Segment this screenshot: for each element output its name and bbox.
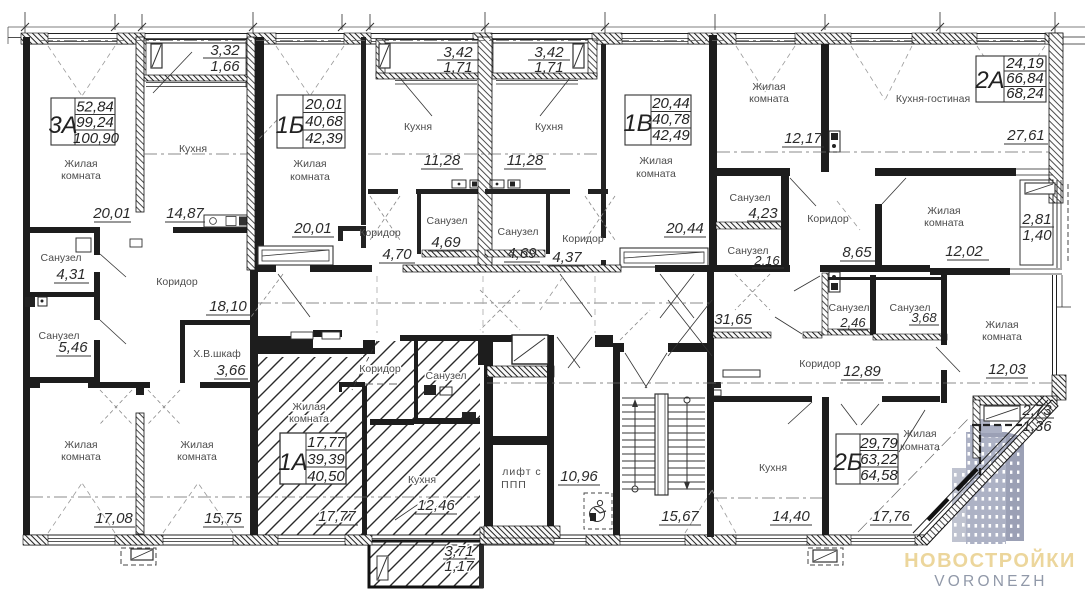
svg-text:1А: 1А <box>278 449 307 476</box>
svg-text:Санузел: Санузел <box>730 192 771 204</box>
svg-text:Коридор: Коридор <box>807 213 849 225</box>
svg-text:Х.В.шкаф: Х.В.шкаф <box>193 348 241 360</box>
svg-text:4,70: 4,70 <box>382 246 412 263</box>
svg-text:68,24: 68,24 <box>1006 85 1044 102</box>
svg-text:17,77: 17,77 <box>318 508 356 525</box>
svg-text:14,87: 14,87 <box>166 205 204 222</box>
svg-text:Кухня-гостиная: Кухня-гостиная <box>896 93 970 105</box>
svg-text:Санузел: Санузел <box>426 370 467 382</box>
svg-text:Кухня: Кухня <box>408 474 436 486</box>
svg-text:1,71: 1,71 <box>443 59 472 76</box>
svg-text:39,39: 39,39 <box>307 451 345 468</box>
svg-text:комната: комната <box>982 331 1022 343</box>
svg-text:4,69: 4,69 <box>507 245 537 262</box>
svg-text:3,66: 3,66 <box>216 362 246 379</box>
svg-text:Жилая: Жилая <box>639 155 672 167</box>
svg-text:Коридор: Коридор <box>562 233 604 245</box>
svg-text:12,17: 12,17 <box>784 130 822 147</box>
svg-text:комната: комната <box>61 170 101 182</box>
svg-text:Жилая: Жилая <box>927 205 960 217</box>
svg-text:52,84: 52,84 <box>76 99 114 116</box>
svg-text:комната: комната <box>290 171 330 183</box>
svg-text:4,31: 4,31 <box>56 266 85 283</box>
svg-text:64,58: 64,58 <box>860 467 898 484</box>
svg-text:Санузел: Санузел <box>41 252 82 264</box>
svg-text:Коридор: Коридор <box>359 227 401 239</box>
svg-text:1,17: 1,17 <box>444 558 474 575</box>
svg-text:17,76: 17,76 <box>872 508 910 525</box>
svg-text:2,46: 2,46 <box>839 315 866 330</box>
svg-text:Санузел: Санузел <box>829 302 870 314</box>
svg-text:42,49: 42,49 <box>652 127 690 144</box>
svg-text:Санузел: Санузел <box>498 226 539 238</box>
svg-text:42,39: 42,39 <box>305 130 343 147</box>
svg-text:Кухня: Кухня <box>404 121 432 133</box>
svg-text:комната: комната <box>900 441 940 453</box>
svg-text:Жилая: Жилая <box>292 401 325 413</box>
svg-text:15,75: 15,75 <box>204 510 242 527</box>
svg-text:2А: 2А <box>974 67 1004 94</box>
svg-text:Санузел: Санузел <box>427 215 468 227</box>
svg-text:Жилая: Жилая <box>985 319 1018 331</box>
svg-text:Кухня: Кухня <box>759 462 787 474</box>
svg-text:НОВОСТРОЙКИ: НОВОСТРОЙКИ <box>904 548 1076 572</box>
svg-text:17,08: 17,08 <box>95 510 133 527</box>
svg-text:2,73: 2,73 <box>1021 402 1052 419</box>
svg-text:20,44: 20,44 <box>665 220 704 237</box>
svg-text:Кухня: Кухня <box>535 121 563 133</box>
svg-text:31,65: 31,65 <box>714 311 752 328</box>
svg-text:Коридор: Коридор <box>799 358 841 370</box>
svg-text:100,90: 100,90 <box>73 130 120 147</box>
svg-text:4,23: 4,23 <box>748 205 778 222</box>
svg-text:17,77: 17,77 <box>307 434 345 451</box>
svg-text:1,71: 1,71 <box>534 59 563 76</box>
svg-text:Жилая: Жилая <box>64 158 97 170</box>
svg-text:20,44: 20,44 <box>651 95 690 112</box>
svg-text:12,02: 12,02 <box>945 243 983 260</box>
svg-text:Жилая: Жилая <box>180 439 213 451</box>
svg-text:3,68: 3,68 <box>911 310 937 325</box>
svg-text:4,69: 4,69 <box>431 234 461 251</box>
svg-text:1,40: 1,40 <box>1022 227 1052 244</box>
svg-text:20,01: 20,01 <box>293 220 332 237</box>
svg-text:VORONEZH: VORONEZH <box>934 573 1047 590</box>
svg-text:18,10: 18,10 <box>209 298 247 315</box>
svg-text:99,24: 99,24 <box>76 114 114 131</box>
svg-text:лифт с: лифт с <box>502 466 541 478</box>
svg-text:2,16: 2,16 <box>753 253 780 268</box>
svg-text:63,22: 63,22 <box>860 451 898 468</box>
svg-text:Жилая: Жилая <box>293 158 326 170</box>
svg-text:40,50: 40,50 <box>307 468 345 485</box>
svg-text:11,28: 11,28 <box>507 152 544 169</box>
svg-text:2,81: 2,81 <box>1021 211 1051 228</box>
svg-text:Коридор: Коридор <box>359 363 401 375</box>
svg-text:40,78: 40,78 <box>652 111 690 128</box>
svg-text:29,79: 29,79 <box>859 435 898 452</box>
svg-text:27,61: 27,61 <box>1006 127 1045 144</box>
svg-text:комната: комната <box>289 413 329 425</box>
svg-text:15,67: 15,67 <box>661 508 699 525</box>
svg-text:комната: комната <box>924 217 964 229</box>
svg-text:10,96: 10,96 <box>560 468 598 485</box>
svg-text:4,37: 4,37 <box>552 249 582 266</box>
svg-text:12,46: 12,46 <box>417 497 455 514</box>
svg-text:комната: комната <box>177 451 217 463</box>
svg-text:11,28: 11,28 <box>424 152 461 169</box>
svg-text:1В: 1В <box>623 110 652 137</box>
svg-text:12,03: 12,03 <box>988 361 1026 378</box>
svg-text:20,01: 20,01 <box>304 96 343 113</box>
svg-text:комната: комната <box>636 168 676 180</box>
svg-text:Коридор: Коридор <box>156 276 198 288</box>
svg-text:5,46: 5,46 <box>58 339 88 356</box>
svg-text:Жилая: Жилая <box>752 81 785 93</box>
svg-text:1,36: 1,36 <box>1022 418 1052 435</box>
svg-text:40,68: 40,68 <box>305 113 343 130</box>
svg-text:8,65: 8,65 <box>842 244 872 261</box>
svg-text:Кухня: Кухня <box>179 143 207 155</box>
svg-text:2Б: 2Б <box>833 449 863 476</box>
svg-text:14,40: 14,40 <box>772 508 810 525</box>
svg-text:ППП: ППП <box>501 479 527 491</box>
svg-text:12,89: 12,89 <box>843 363 881 380</box>
svg-text:1Б: 1Б <box>276 112 305 139</box>
svg-text:3,32: 3,32 <box>210 42 240 59</box>
svg-text:Жилая: Жилая <box>903 428 936 440</box>
svg-text:Жилая: Жилая <box>64 439 97 451</box>
svg-text:комната: комната <box>61 451 101 463</box>
svg-text:комната: комната <box>749 93 789 105</box>
svg-text:1,66: 1,66 <box>210 58 240 75</box>
svg-text:20,01: 20,01 <box>92 205 131 222</box>
